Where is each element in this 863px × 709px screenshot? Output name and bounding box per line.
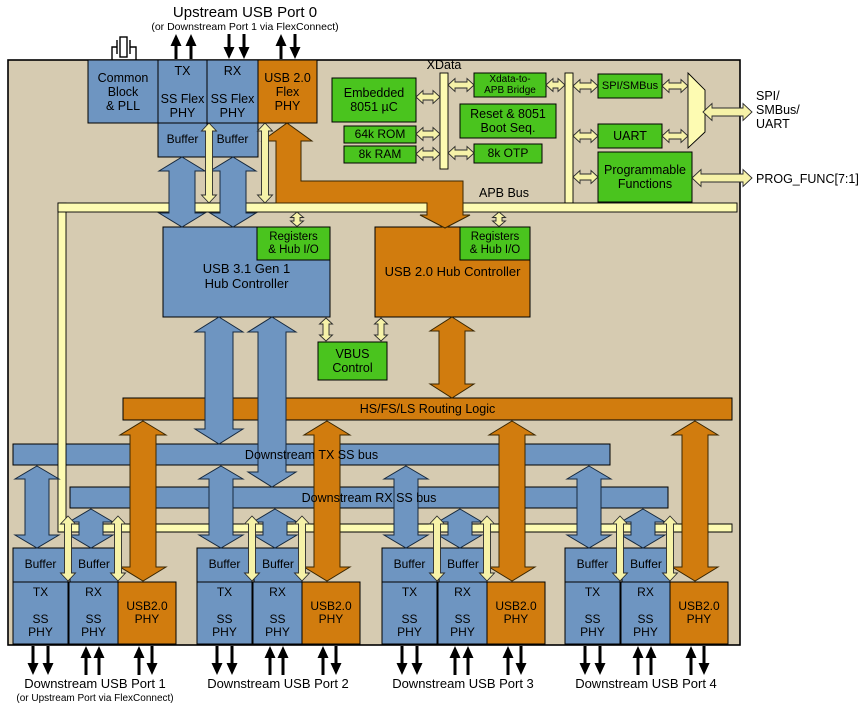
upstream-buffer-right [207,123,258,157]
uart-block [598,124,662,148]
rx-ss-flex-phy [207,60,258,123]
xdata-apb-bridge [474,73,546,97]
common-block-pll [88,60,158,123]
upstream-port-arrows [171,34,301,59]
usb31-registers-hub-io [257,227,330,260]
downstream-port-arrows [28,646,710,675]
usb20-flex-phy [258,60,317,123]
xdata-bus-bar [440,73,448,169]
ram-8k [344,146,416,163]
diagram-canvas [0,0,863,709]
programmable-functions-block [598,152,692,202]
reset-boot-seq [460,104,556,138]
peripheral-bus-bar [565,73,573,203]
usb20-registers-hub-io [460,227,530,260]
usb-hub-block-diagram: Upstream USB Port 0 (or Downstream Port … [0,0,863,709]
tx-ss-flex-phy [158,60,207,123]
rom-64k [344,126,416,143]
upstream-buffer-left [158,123,207,157]
vbus-control [318,342,387,380]
otp-8k [474,144,542,163]
embedded-8051 [332,78,416,122]
apb-bus-horizontal [58,203,737,212]
spi-smbus-block [598,74,662,98]
crystal-icon [112,37,136,60]
